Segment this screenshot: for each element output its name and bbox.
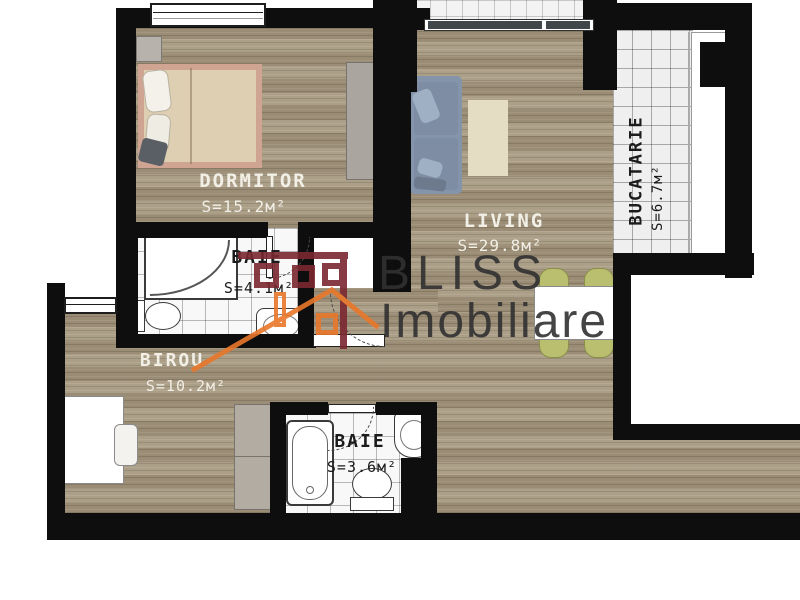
room-label-bucatarie: BUCATARIE (629, 96, 646, 246)
window-frame-line (153, 18, 263, 19)
wall (116, 334, 316, 348)
bed-blanket-fold (190, 68, 192, 164)
wall (613, 255, 631, 440)
wall (47, 513, 800, 540)
office-wardrobe-divider (234, 456, 274, 457)
wall (116, 8, 136, 234)
wall (583, 0, 617, 90)
wall (270, 402, 286, 513)
window-frame-line (66, 304, 115, 305)
window-glass (428, 21, 542, 29)
wall (725, 8, 752, 278)
window-frame-line (153, 12, 263, 13)
wall (613, 424, 800, 440)
window (64, 297, 117, 314)
room-label-living: LIVING (414, 212, 594, 231)
window-glass (546, 21, 590, 29)
room-area-birou: S=10.2м² (96, 379, 276, 394)
wall (47, 283, 65, 540)
room-label-birou: BIROU (92, 352, 252, 370)
window (150, 3, 266, 27)
wall (613, 253, 754, 275)
wall (116, 228, 138, 348)
kitchen-counter-line (688, 32, 690, 255)
floor-plan: DORMITOR S=15.2м² BAIE S=4.1м² LIVING S=… (0, 0, 800, 600)
bathtub-drain (306, 486, 314, 494)
wall (700, 42, 728, 87)
room-label-baie1: BAIE (187, 249, 327, 267)
office-wardrobe (234, 404, 274, 510)
coffee-rug (468, 100, 508, 176)
room-area-baie1: S=4.1м² (189, 281, 329, 296)
room-label-dormitor: DORMITOR (153, 172, 353, 191)
dining-table (534, 286, 618, 340)
exterior-area (631, 275, 800, 424)
room-area-living: S=29.8м² (410, 238, 590, 254)
wall (116, 222, 268, 238)
room-area-dormitor: S=15.2м² (154, 199, 334, 215)
bed-pillow (142, 69, 173, 114)
toilet-bowl (145, 302, 181, 330)
desk-chair (114, 424, 138, 466)
room-label-baie2: BAIE (290, 433, 430, 451)
room-area-bucatarie: S=6.7м² (651, 133, 665, 263)
room-area-baie2: S=3.6м² (292, 460, 432, 475)
nightstand (136, 36, 162, 62)
wall (373, 0, 411, 292)
wall (302, 222, 397, 238)
toilet-tank (350, 497, 394, 511)
bedroom-wardrobe (346, 62, 374, 180)
